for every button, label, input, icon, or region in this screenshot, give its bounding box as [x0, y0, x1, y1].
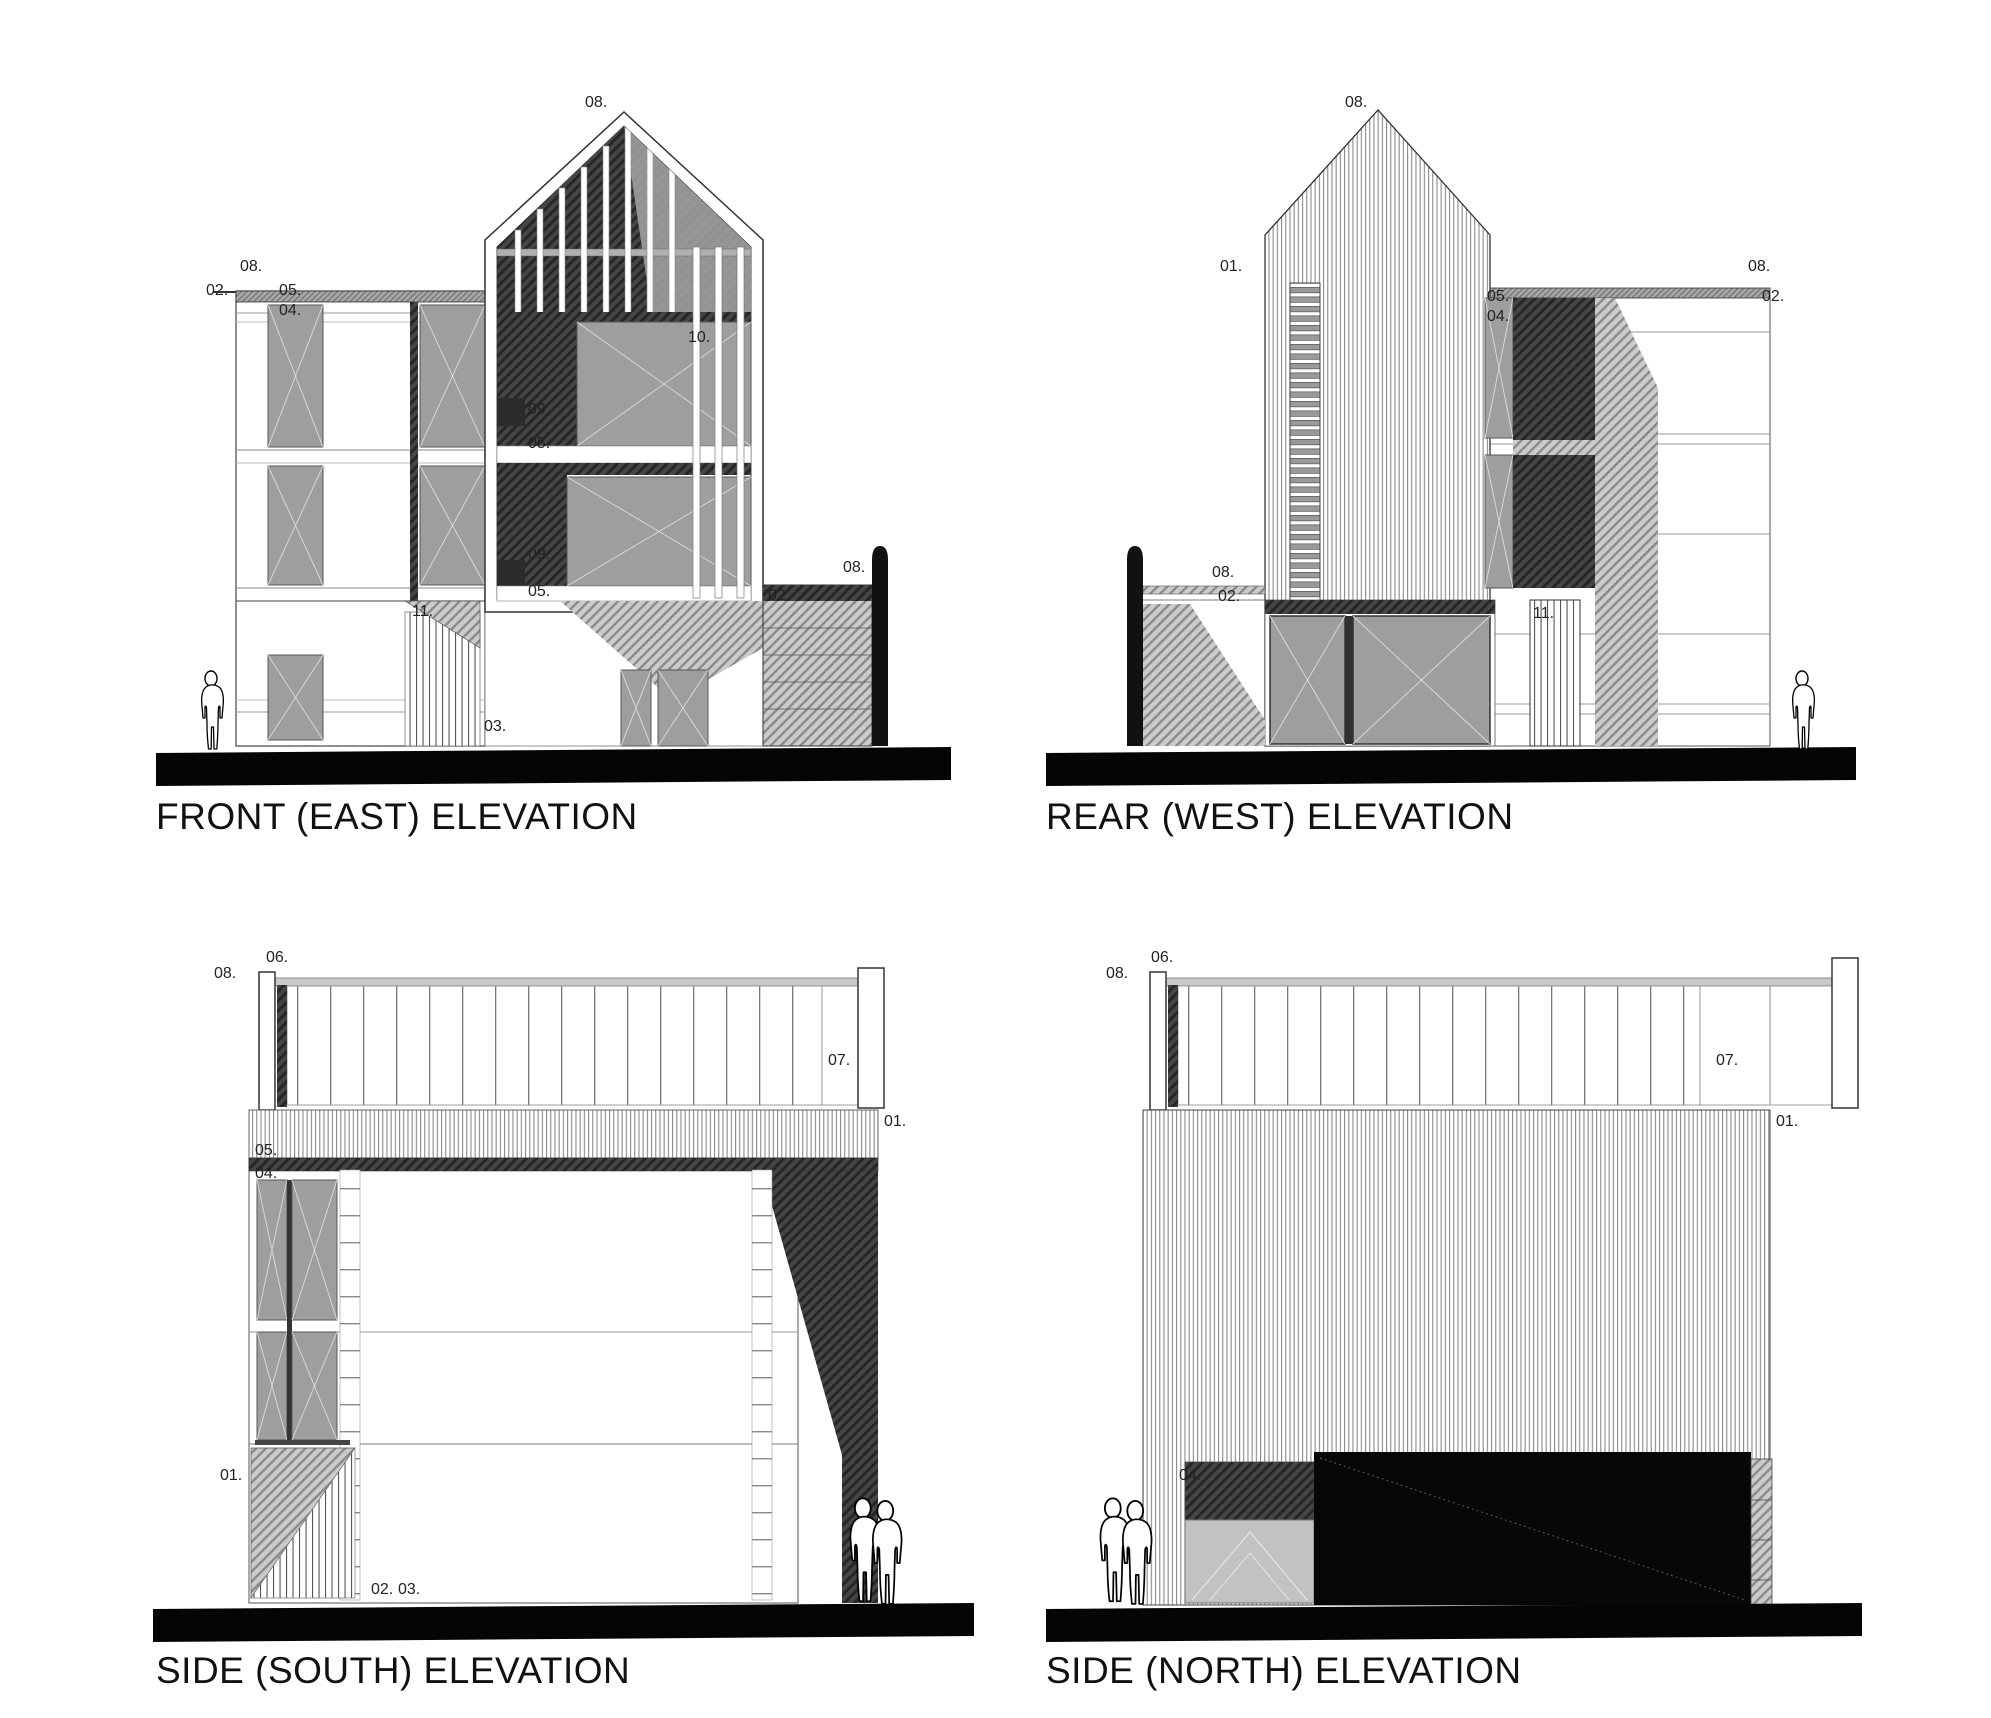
- elevation-sheet: 08.08.02.05.04.10.09.05.09.05.11.03.08.0…: [0, 0, 1991, 1718]
- annotation-side-south: 06.: [266, 950, 288, 966]
- north-ground-level: [1185, 1452, 1772, 1605]
- rear-louver-window: [1290, 283, 1320, 601]
- annotation-side-south: 04.: [255, 1166, 277, 1182]
- south-fence-post-left: [259, 972, 275, 1110]
- north-ground-bar: [1046, 1603, 1862, 1642]
- annotation-side-north: 04.: [1179, 1468, 1201, 1484]
- front-gable-roof-interior: [497, 126, 751, 316]
- annotation-front-east: 05.: [528, 436, 550, 452]
- annotation-side-north: 07.: [1716, 1053, 1738, 1069]
- north-fence-post-left: [1150, 972, 1166, 1110]
- front-east-elevation: [156, 112, 951, 786]
- annotation-rear-west: 01.: [1220, 259, 1242, 275]
- annotation-rear-west: 08.: [1748, 259, 1770, 275]
- annotation-front-east: 02.: [206, 283, 228, 299]
- rear-person-figure: [1793, 671, 1815, 749]
- annotation-rear-west: 02.: [1218, 589, 1240, 605]
- south-ground-bar: [153, 1603, 974, 1642]
- south-fence: [259, 968, 884, 1110]
- side-south-elevation: [153, 968, 974, 1642]
- title-rear-west: REAR (WEST) ELEVATION: [1046, 796, 1514, 838]
- annotation-side-south: 03.: [398, 1582, 420, 1598]
- north-black-volume: [1314, 1452, 1751, 1605]
- annotation-side-south: 07.: [828, 1053, 850, 1069]
- front-low-wing: [763, 546, 888, 746]
- annotation-front-east: 09.: [528, 547, 550, 563]
- annotation-rear-west: 11.: [1533, 606, 1554, 622]
- south-fence-post-right: [858, 968, 884, 1108]
- front-fence-post: [872, 546, 888, 746]
- rear-west-elevation: [1046, 110, 1856, 786]
- front-person-figure: [202, 671, 224, 749]
- annotation-front-east: 05.: [279, 283, 301, 299]
- elevation-drawing-svg: [0, 0, 1991, 1718]
- annotation-side-south: 08.: [214, 966, 236, 982]
- annotation-rear-west: 04.: [1487, 309, 1509, 325]
- title-side-north: SIDE (NORTH) ELEVATION: [1046, 1650, 1522, 1692]
- annotation-rear-west: 08.: [1212, 565, 1234, 581]
- rear-fence-post: [1127, 546, 1143, 746]
- annotation-side-south: 01.: [220, 1468, 242, 1484]
- rear-fence: [1127, 546, 1265, 746]
- annotation-front-east: 08.: [240, 259, 262, 275]
- annotation-side-south: 05.: [255, 1143, 277, 1159]
- annotation-front-east: 11.: [412, 604, 433, 620]
- annotation-front-east: 10.: [688, 330, 710, 346]
- annotation-rear-west: 08.: [1345, 95, 1367, 111]
- annotation-front-east: 03.: [484, 719, 506, 735]
- title-side-south: SIDE (SOUTH) ELEVATION: [156, 1650, 630, 1692]
- annotation-side-south: 02.: [371, 1582, 393, 1598]
- annotation-front-east: 08.: [843, 560, 865, 576]
- annotation-side-north: 06.: [1151, 950, 1173, 966]
- title-front-east: FRONT (EAST) ELEVATION: [156, 796, 638, 838]
- south-main-body: [249, 1158, 878, 1603]
- south-clad-band: [249, 1110, 878, 1158]
- rear-ground-bar: [1046, 747, 1856, 786]
- annotation-front-east: 02.: [768, 588, 790, 604]
- annotation-front-east: 09.: [528, 402, 550, 418]
- side-north-elevation: [1046, 958, 1862, 1642]
- annotation-rear-west: 02.: [1762, 289, 1784, 305]
- annotation-front-east: 04.: [279, 303, 301, 319]
- annotation-side-south: 01.: [884, 1114, 906, 1130]
- annotation-side-north: 01.: [1776, 1114, 1798, 1130]
- annotation-side-north: 08.: [1106, 966, 1128, 982]
- annotation-front-east: 05.: [528, 584, 550, 600]
- front-ground-bar: [156, 747, 951, 786]
- north-fence: [1150, 958, 1858, 1110]
- annotation-front-east: 08.: [585, 95, 607, 111]
- annotation-rear-west: 05.: [1487, 289, 1509, 305]
- north-fence-post-right: [1832, 958, 1858, 1108]
